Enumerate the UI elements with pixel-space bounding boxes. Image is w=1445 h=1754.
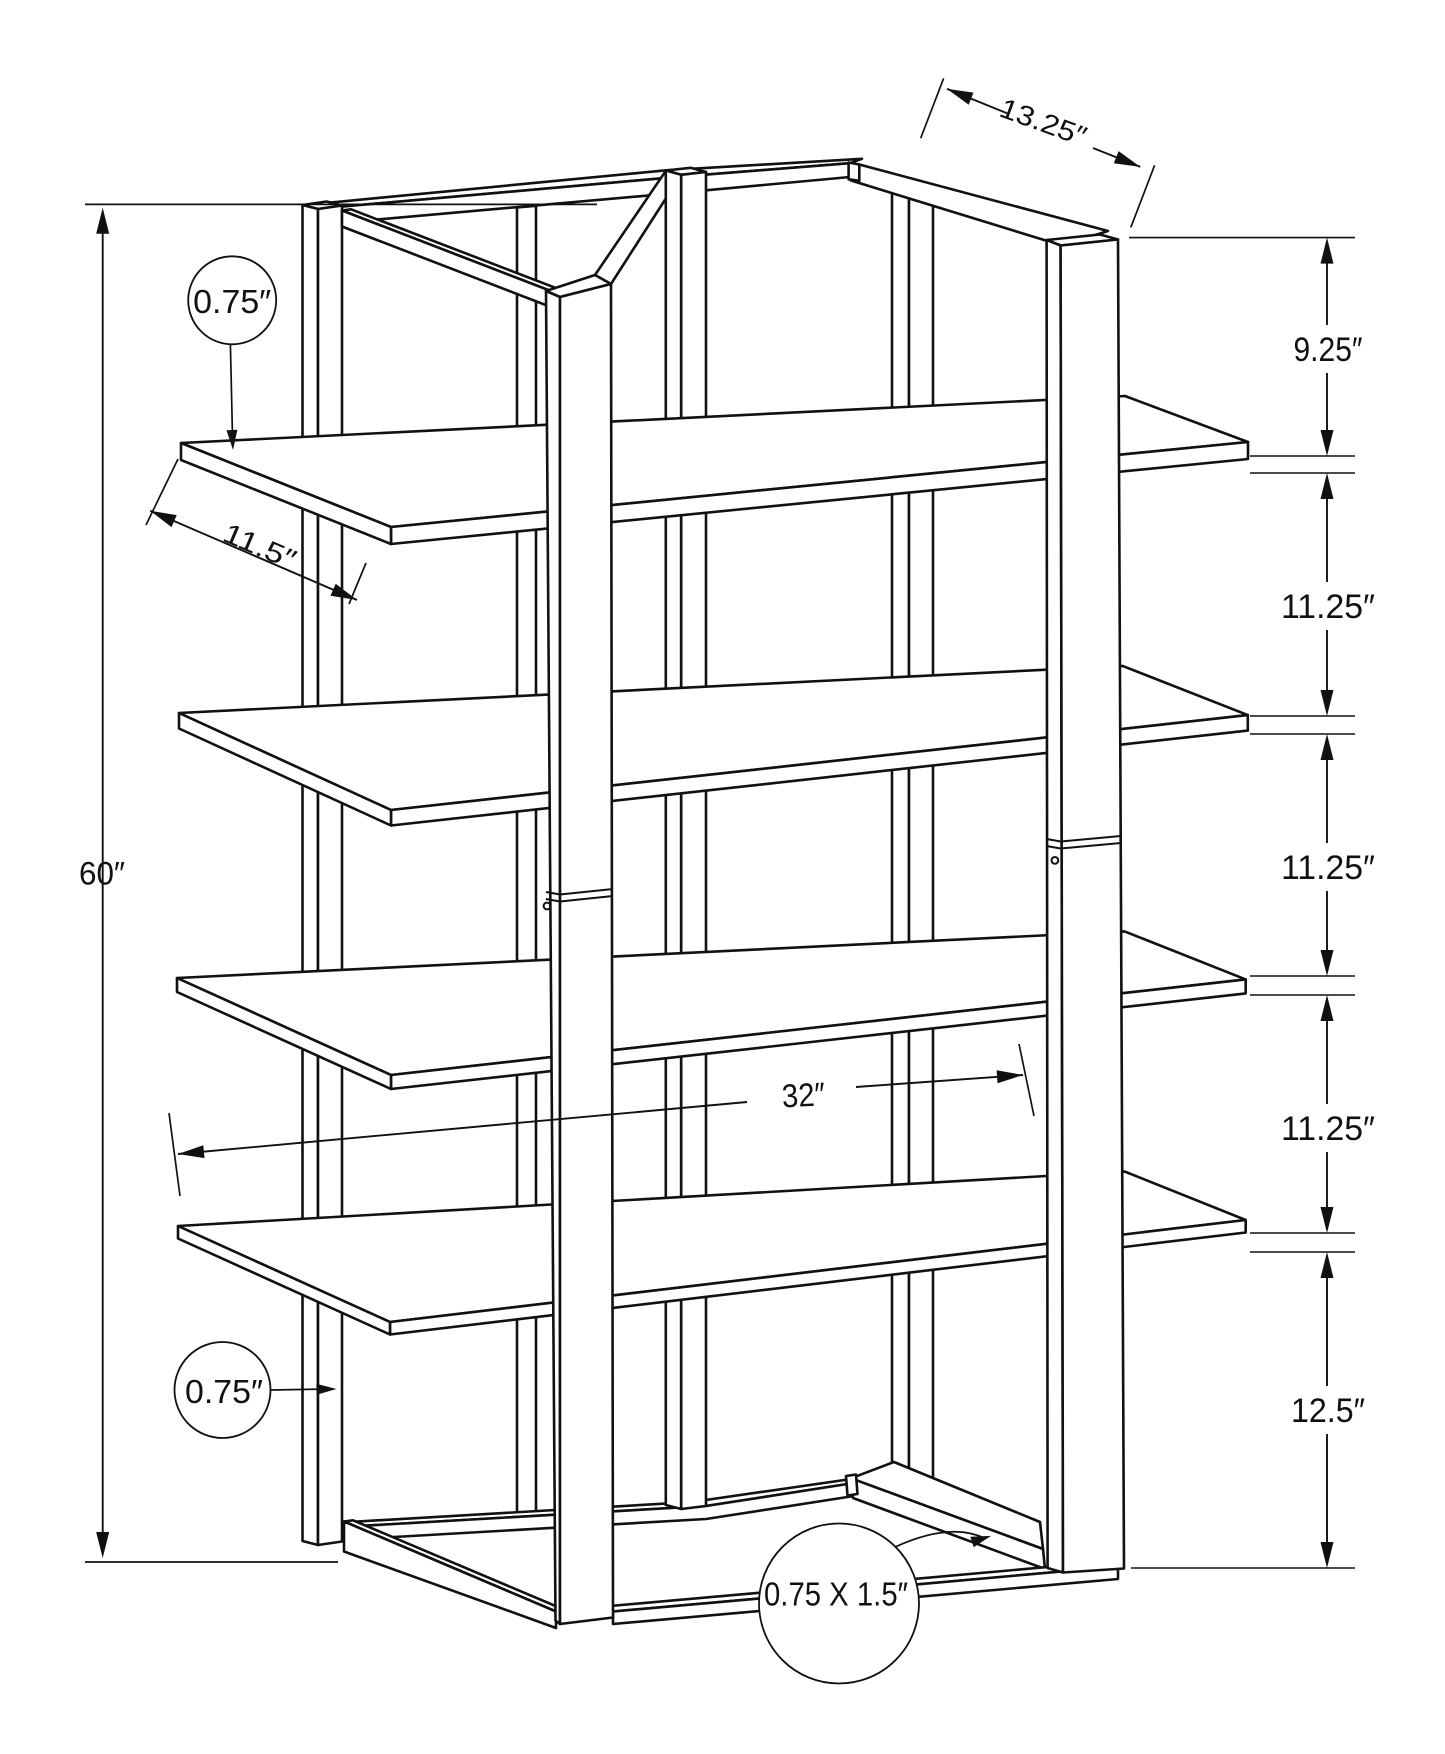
svg-text:12.5″: 12.5″ [1291, 1392, 1365, 1430]
svg-text:0.75 X 1.5″: 0.75 X 1.5″ [764, 1576, 908, 1613]
svg-text:9.25″: 9.25″ [1294, 331, 1363, 369]
svg-text:11.25″: 11.25″ [1281, 849, 1375, 887]
svg-text:32″: 32″ [781, 1075, 826, 1114]
svg-text:11.25″: 11.25″ [1281, 1110, 1375, 1148]
svg-text:0.75″: 0.75″ [193, 283, 271, 320]
svg-text:11.25″: 11.25″ [1281, 588, 1375, 626]
svg-text:60″: 60″ [79, 856, 125, 892]
svg-text:0.75″: 0.75″ [185, 1373, 263, 1410]
